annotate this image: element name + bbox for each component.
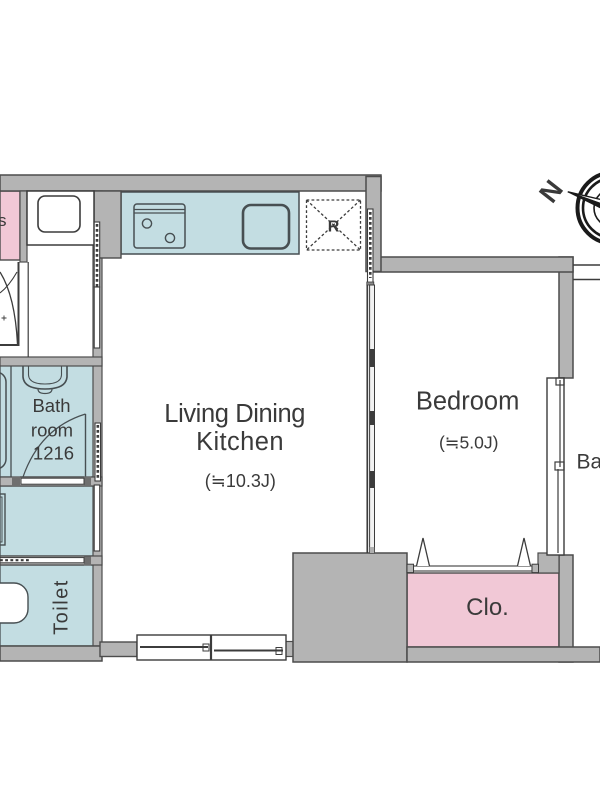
svg-text:Balcony: Balcony — [577, 451, 600, 474]
svg-text:Bath: Bath — [32, 395, 70, 416]
svg-text:(≒10.3J): (≒10.3J) — [205, 471, 276, 491]
svg-text:Clo.: Clo. — [466, 594, 509, 621]
svg-text:s: s — [0, 211, 7, 230]
svg-text:Living Dining: Living Dining — [164, 400, 305, 428]
svg-text:Kitchen: Kitchen — [196, 428, 284, 456]
svg-text:(≒5.0J): (≒5.0J) — [439, 433, 498, 453]
svg-text:R: R — [328, 219, 340, 236]
svg-text:Bedroom: Bedroom — [416, 388, 519, 416]
svg-text:Toilet: Toilet — [51, 579, 73, 635]
svg-text:room: room — [31, 420, 73, 441]
svg-text:1216: 1216 — [33, 443, 74, 464]
